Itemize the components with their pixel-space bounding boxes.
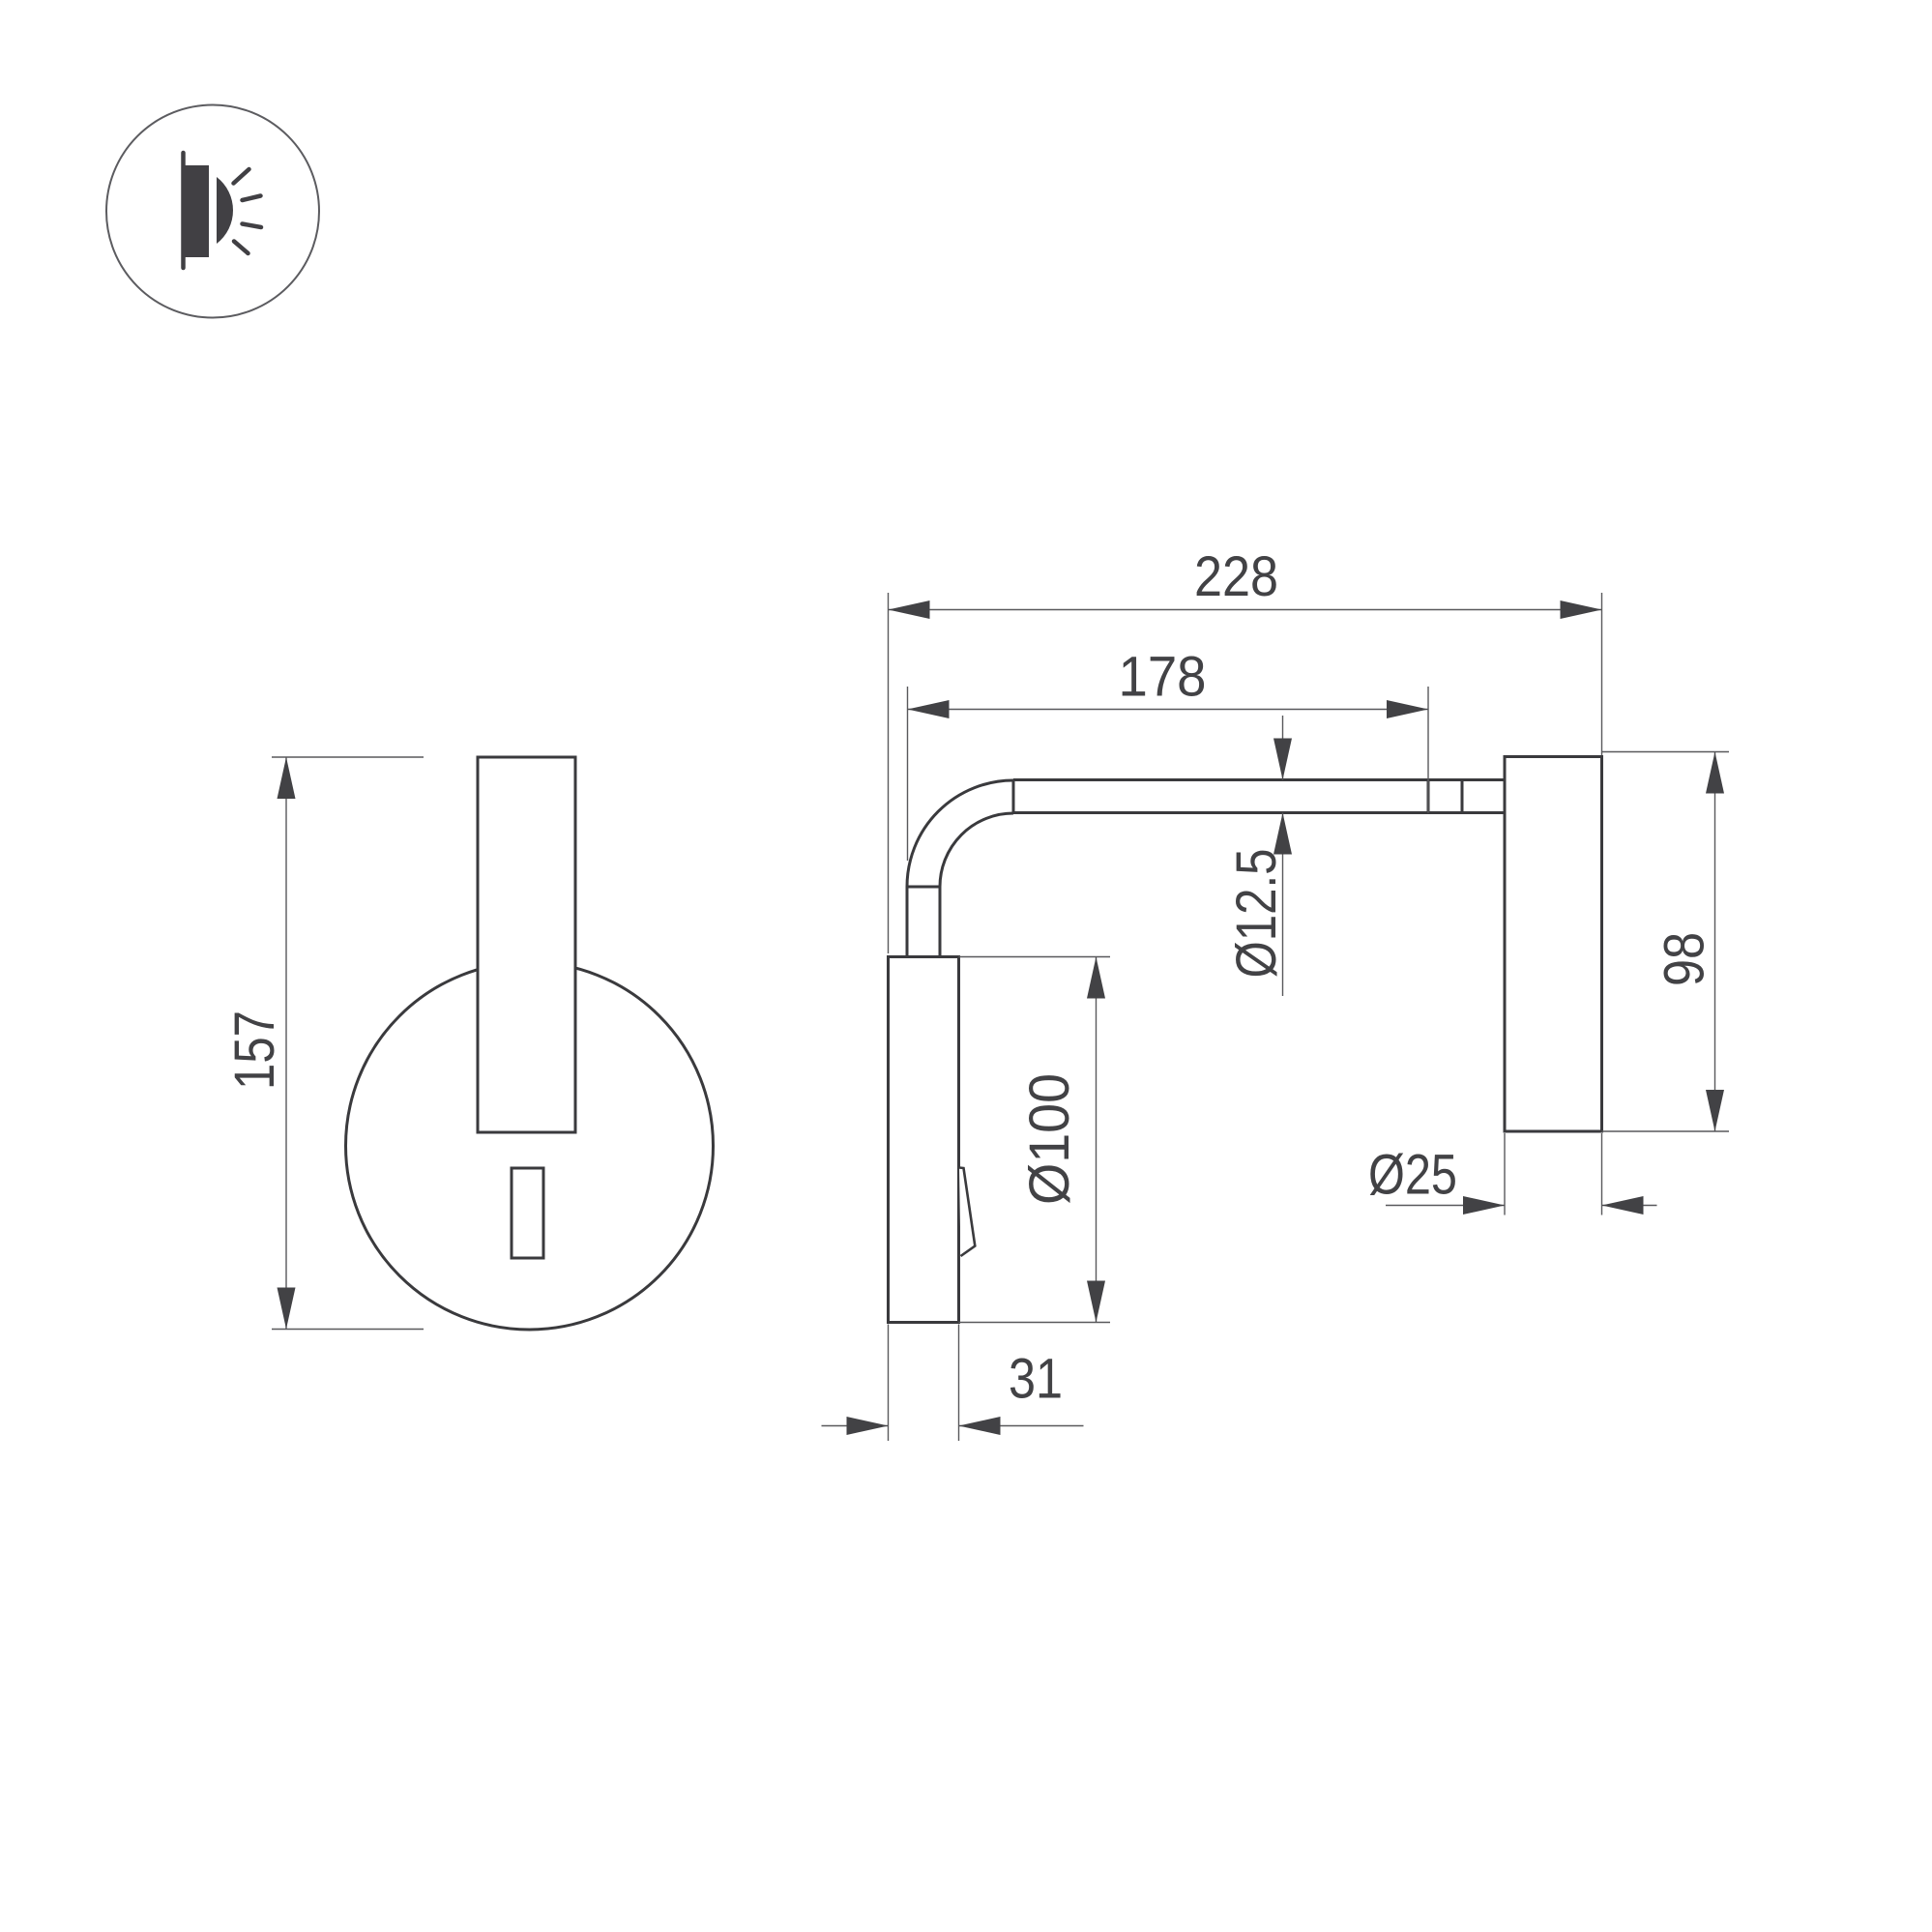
svg-text:31: 31 bbox=[1009, 1348, 1063, 1411]
svg-text:157: 157 bbox=[223, 1010, 286, 1090]
svg-text:Ø12.5: Ø12.5 bbox=[1225, 849, 1288, 979]
svg-text:228: 228 bbox=[1194, 545, 1278, 608]
svg-text:178: 178 bbox=[1119, 646, 1207, 709]
svg-text:Ø25: Ø25 bbox=[1368, 1144, 1457, 1207]
svg-text:98: 98 bbox=[1654, 932, 1716, 986]
svg-text:Ø100: Ø100 bbox=[1018, 1073, 1081, 1205]
